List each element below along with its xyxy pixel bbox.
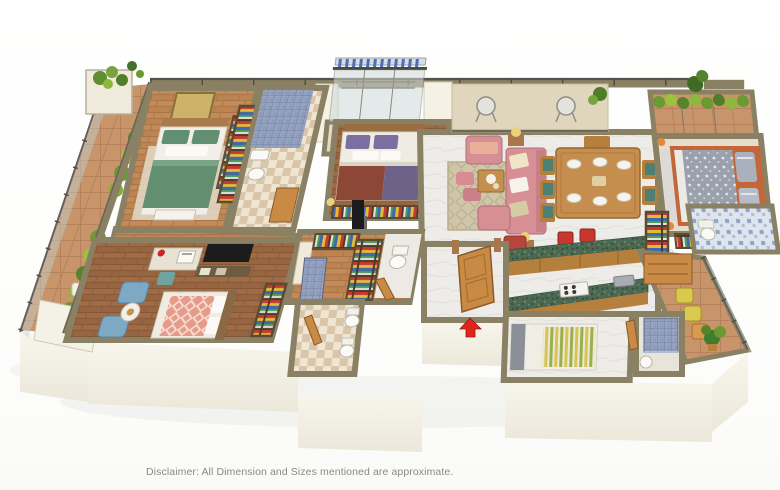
dining-table	[556, 148, 640, 218]
sink	[614, 275, 635, 287]
dining-room	[540, 136, 657, 222]
floorplan-3d-render	[0, 0, 780, 490]
living-balcony	[452, 84, 608, 132]
blue-armchair	[117, 282, 150, 303]
wardrobe-shelves	[332, 206, 425, 218]
bed-striped	[510, 324, 598, 370]
ottoman	[456, 172, 474, 185]
shower-tiles	[644, 318, 678, 352]
wooden-dresser	[644, 254, 692, 284]
glass-wall	[329, 70, 424, 122]
coffee-table	[478, 170, 504, 192]
disclaimer-text: Disclaimer: All Dimension and Sizes ment…	[146, 466, 453, 478]
wardrobe-shelves	[313, 234, 360, 249]
yellow-chair	[684, 306, 701, 321]
bathroom-4	[626, 314, 682, 374]
floorplan-page: Disclaimer: All Dimension and Sizes ment…	[0, 0, 780, 490]
toilet	[339, 338, 355, 357]
bar-stool	[580, 229, 595, 242]
shower-tiles	[300, 258, 327, 302]
wall-art	[171, 93, 215, 119]
yellow-chair	[676, 288, 693, 303]
study-bedroom-4	[66, 240, 300, 340]
sofa-armchair-1	[466, 136, 502, 164]
bed-salmon-diamond	[150, 290, 237, 340]
bed-bench	[154, 210, 196, 220]
hob	[559, 282, 588, 298]
washbasin	[249, 150, 269, 160]
bar-stool	[558, 232, 573, 245]
foyer	[424, 238, 506, 337]
wardrobe-column-right	[646, 212, 668, 256]
wash-bucket	[640, 356, 652, 368]
toilet	[344, 308, 360, 327]
bed-purple-maroon	[336, 124, 426, 200]
utility-bedroom	[504, 314, 632, 380]
sofa-armchair-2	[478, 206, 510, 230]
bathroom-3	[688, 206, 778, 252]
